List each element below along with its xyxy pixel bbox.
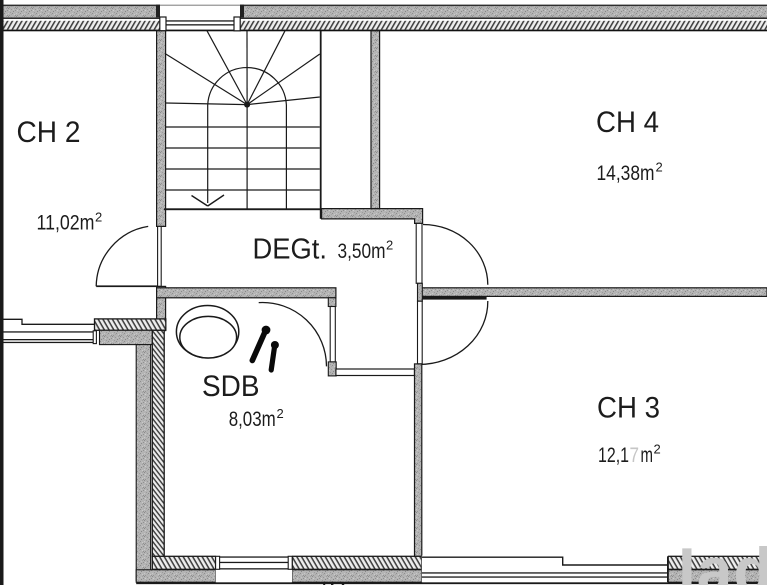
svg-text:7: 7 [630,443,640,467]
svg-text:11,02m: 11,02m [37,211,95,235]
svg-text:3,50m: 3,50m [338,239,386,263]
svg-text:CH 2: CH 2 [17,116,81,149]
svg-text:14,38m: 14,38m [597,161,655,185]
svg-text:SDB: SDB [202,370,260,403]
svg-text:2: 2 [277,406,284,421]
svg-text:2: 2 [656,160,663,175]
svg-text:2: 2 [654,442,661,457]
svg-text:12,1: 12,1 [598,443,629,467]
svg-text:2: 2 [95,210,102,225]
svg-text:DEGt.: DEGt. [253,234,328,266]
svg-text:m: m [641,443,654,467]
svg-text:8,03m: 8,03m [229,407,276,431]
svg-text:2: 2 [386,238,393,253]
svg-text:Iad: Iad [678,535,767,585]
svg-text:CH 4: CH 4 [596,106,659,139]
svg-text:CH 3: CH 3 [597,392,660,425]
